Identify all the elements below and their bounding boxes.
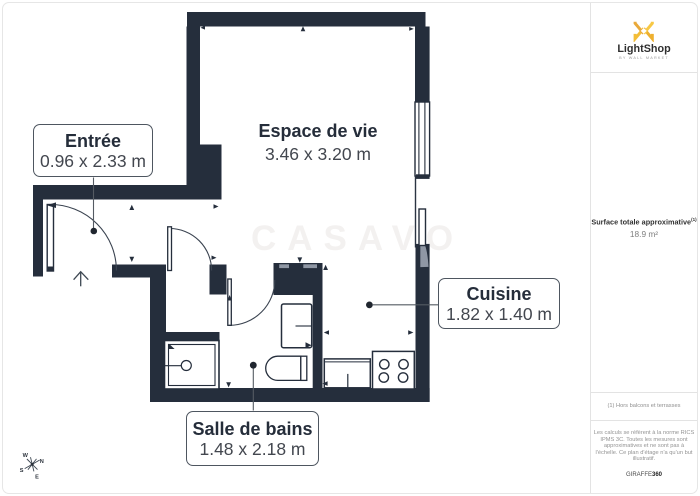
svg-text:E: E xyxy=(35,474,39,480)
svg-text:S: S xyxy=(20,468,24,474)
svg-text:N: N xyxy=(40,459,44,465)
svg-text:W: W xyxy=(23,453,29,459)
